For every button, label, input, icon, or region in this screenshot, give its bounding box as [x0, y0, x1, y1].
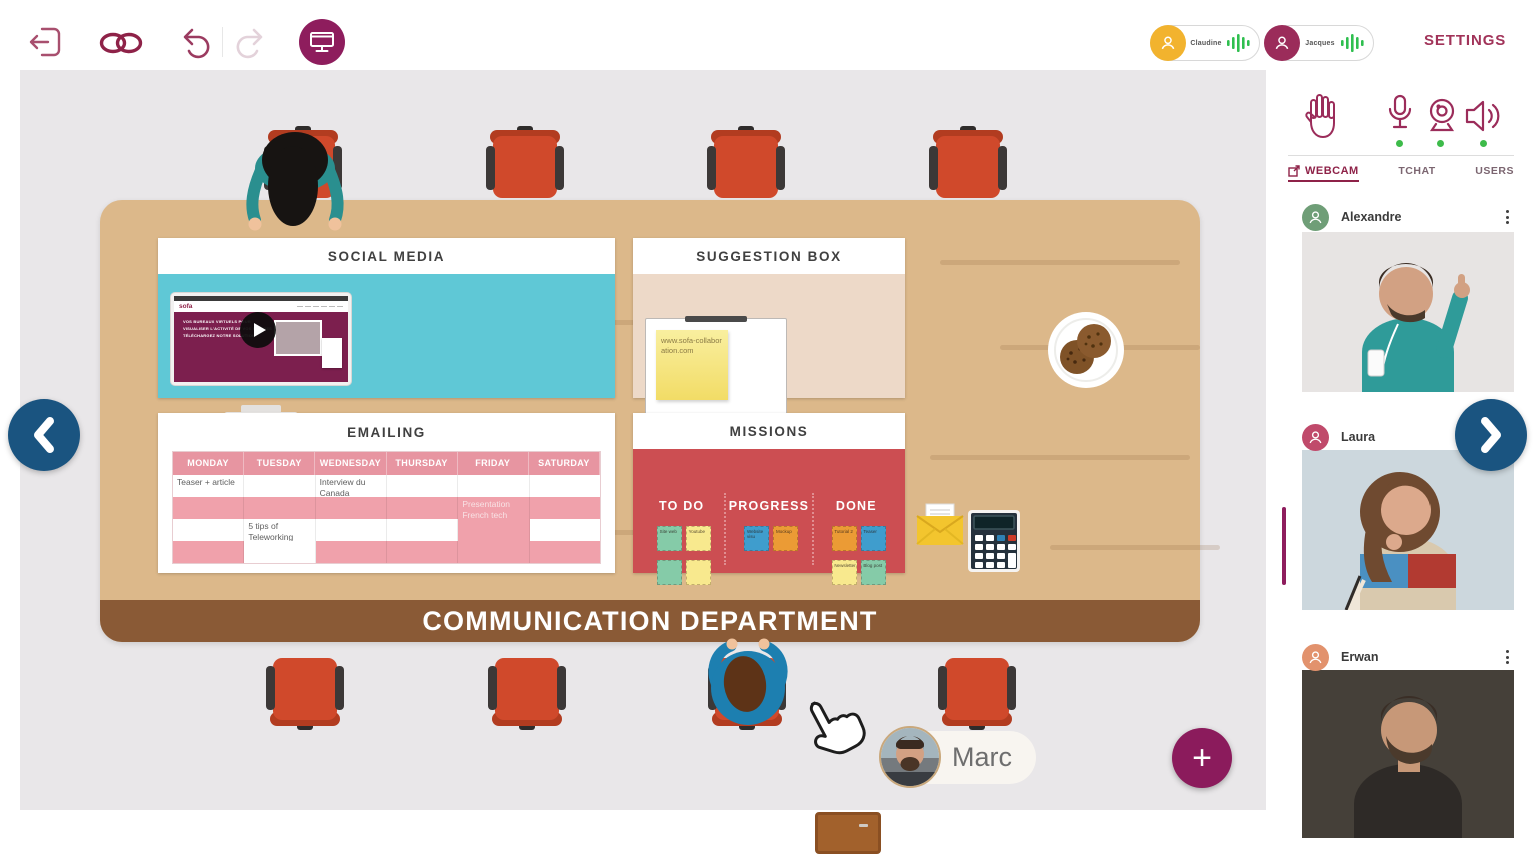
- avatar: [1302, 424, 1329, 451]
- chevron-right-icon: [1474, 413, 1508, 457]
- door-handle: [859, 824, 868, 827]
- exit-room-icon[interactable]: [26, 24, 64, 60]
- emailing-row: Teaser + articleInterview du Canada: [173, 475, 600, 497]
- board-title: SOCIAL MEDIA: [158, 238, 615, 274]
- avatar: [1264, 25, 1300, 61]
- calculator-icon[interactable]: [968, 510, 1020, 572]
- plus-glyph: +: [1192, 739, 1212, 778]
- emailing-column-header: WEDNESDAY: [315, 452, 386, 475]
- missions-columns: TO DOSite webYoutubePROGRESSWebsite visu…: [633, 485, 905, 573]
- chair[interactable]: [707, 126, 785, 204]
- toolbar-divider: [222, 27, 223, 57]
- speaker-icon[interactable]: [1464, 96, 1504, 136]
- emailing-cell[interactable]: [316, 519, 387, 541]
- hand-cursor: [796, 692, 872, 766]
- suggestion-box-body: www.sofa-collaboration.com: [633, 274, 905, 398]
- sticky-note[interactable]: Site web: [657, 526, 682, 551]
- webcam-feed-alexandre[interactable]: [1302, 232, 1514, 392]
- audio-wave-icon: [1340, 33, 1364, 53]
- emailing-row: Presentation French tech: [173, 497, 600, 519]
- redo-icon[interactable]: [232, 26, 268, 60]
- undo-icon[interactable]: [178, 26, 214, 60]
- hero-card: [322, 338, 342, 368]
- board-title: MISSIONS: [633, 413, 905, 449]
- sticky-note[interactable]: Website visu: [744, 526, 769, 551]
- sticky-note[interactable]: www.sofa-collaboration.com: [656, 330, 728, 400]
- cookie-plate[interactable]: [1047, 311, 1125, 389]
- chevron-left-icon: [27, 413, 61, 457]
- wood-grain: [940, 260, 1180, 265]
- missions-notes: Site webYoutube: [657, 526, 706, 585]
- chair[interactable]: [938, 652, 1016, 730]
- emailing-cell[interactable]: [316, 497, 387, 519]
- room-banner: COMMUNICATION DEPARTMENT: [100, 600, 1200, 642]
- emailing-table: MONDAYTUESDAYWEDNESDAYTHURSDAYFRIDAYSATU…: [172, 451, 601, 564]
- copy-link-icon[interactable]: [98, 29, 144, 57]
- seated-person-marc[interactable]: [693, 636, 803, 728]
- missions-board[interactable]: MISSIONS TO DOSite webYoutubePROGRESSWeb…: [633, 413, 905, 573]
- webcam-feed-erwan[interactable]: [1302, 670, 1514, 838]
- whiteboard-clip: [685, 316, 747, 322]
- participant-menu-button[interactable]: [1500, 650, 1514, 664]
- tab-tchat[interactable]: TCHAT: [1398, 165, 1435, 182]
- missions-column: DONETutorial 2TeaserNewsletterBlog post: [812, 493, 899, 565]
- sticky-note[interactable]: Teaser: [861, 526, 886, 551]
- sticky-note[interactable]: Blog post: [861, 560, 886, 585]
- emailing-cell[interactable]: [244, 475, 315, 497]
- emailing-cell[interactable]: [530, 475, 600, 497]
- virtual-office-app: Claudine Jacques SETTINGS: [0, 0, 1536, 854]
- emailing-cell[interactable]: [458, 475, 529, 497]
- speaker-on-indicator: [1480, 140, 1487, 147]
- hero-photo: [274, 320, 322, 356]
- avatar: [1302, 644, 1329, 671]
- sticky-note[interactable]: Youtube: [686, 526, 711, 551]
- present-screen-icon: [309, 30, 335, 54]
- emailing-cell[interactable]: [173, 497, 244, 519]
- chair[interactable]: [486, 126, 564, 204]
- board-title: EMAILING: [158, 425, 615, 440]
- emailing-cell[interactable]: [530, 497, 600, 519]
- voice-chip-jacques[interactable]: Jacques: [1264, 25, 1374, 61]
- emailing-cell[interactable]: Interview du Canada: [316, 475, 387, 497]
- missions-column: PROGRESSWebsite visuMockup: [724, 493, 811, 565]
- suggestion-box-board[interactable]: SUGGESTION BOX www.sofa-collaboration.co…: [633, 238, 905, 398]
- sticky-note[interactable]: [686, 560, 711, 585]
- sidebar-scrollbar-thumb[interactable]: [1282, 507, 1286, 585]
- raise-hand-icon[interactable]: [1303, 92, 1343, 140]
- avatar: [1150, 25, 1186, 61]
- emailing-cell[interactable]: [387, 475, 458, 497]
- participant-row-erwan: Erwan: [1302, 643, 1514, 671]
- top-toolbar: Claudine Jacques: [0, 0, 1536, 70]
- voice-chip-claudine[interactable]: Claudine: [1150, 25, 1260, 61]
- tab-label: WEBCAM: [1305, 165, 1359, 177]
- participant-name: Erwan: [1341, 650, 1500, 664]
- emailing-cell[interactable]: [173, 541, 244, 563]
- social-media-body: sofa VOS BUREAUX VIRTUELS POURVISUALISER…: [158, 274, 615, 398]
- sticky-note[interactable]: [657, 560, 682, 585]
- emailing-column-header: FRIDAY: [458, 452, 529, 475]
- emailing-column-header: SATURDAY: [529, 452, 600, 475]
- user-name-label: Marc: [952, 742, 1012, 773]
- emailing-cell[interactable]: Presentation French tech: [458, 497, 529, 519]
- missions-notes: Website visuMockup: [744, 526, 793, 551]
- room-door[interactable]: [815, 812, 881, 854]
- next-room-button[interactable]: [1455, 399, 1527, 471]
- voice-chip-name: Claudine: [1186, 40, 1226, 47]
- sticky-note[interactable]: Tutorial 2: [832, 526, 857, 551]
- sticky-note[interactable]: Newsletter: [832, 560, 857, 585]
- social-media-board[interactable]: SOCIAL MEDIA sofa VOS BUREAUX VIRTUELS P…: [158, 238, 615, 398]
- settings-button[interactable]: SETTINGS: [1424, 32, 1506, 49]
- tab-webcam[interactable]: WEBCAM: [1288, 165, 1359, 182]
- wood-grain: [930, 455, 1190, 460]
- webcam-feed-laura[interactable]: [1302, 450, 1514, 610]
- emailing-column-header: MONDAY: [173, 452, 244, 475]
- webcam-icon[interactable]: [1424, 96, 1460, 136]
- participant-menu-button[interactable]: [1500, 210, 1514, 224]
- chair[interactable]: [929, 126, 1007, 204]
- emailing-cell[interactable]: [387, 541, 458, 563]
- seated-person-top[interactable]: [240, 120, 350, 232]
- participant-name: Alexandre: [1341, 210, 1500, 224]
- mic-on-indicator: [1396, 140, 1403, 147]
- board-title: SUGGESTION BOX: [633, 238, 905, 274]
- user-photo-avatar[interactable]: [879, 726, 941, 788]
- emailing-cell[interactable]: [387, 519, 458, 541]
- sticky-note[interactable]: Mockup: [773, 526, 798, 551]
- emailing-column-header: TUESDAY: [244, 452, 315, 475]
- voice-chip-name: Jacques: [1300, 40, 1340, 47]
- emailing-cell[interactable]: [530, 519, 600, 541]
- missions-notes: Tutorial 2TeaserNewsletterBlog post: [832, 526, 881, 585]
- chair[interactable]: [266, 652, 344, 730]
- add-button[interactable]: +: [1172, 728, 1232, 788]
- missions-column-label: PROGRESS: [729, 499, 809, 513]
- sidebar-tabs: WEBCAM TCHAT USERS: [1288, 165, 1514, 182]
- emailing-board[interactable]: EMAILING MONDAYTUESDAYWEDNESDAYTHURSDAYF…: [158, 413, 615, 573]
- emailing-cell[interactable]: [530, 541, 600, 563]
- emailing-cell[interactable]: [316, 541, 387, 563]
- audio-wave-icon: [1226, 33, 1250, 53]
- envelope-icon[interactable]: [915, 502, 965, 546]
- present-screen-button[interactable]: [299, 19, 345, 65]
- emailing-cell[interactable]: [387, 497, 458, 519]
- expand-icon: [1288, 165, 1300, 177]
- webcam-on-indicator: [1437, 140, 1444, 147]
- emailing-cell[interactable]: [244, 497, 315, 519]
- emailing-cell[interactable]: [173, 519, 244, 541]
- emailing-column-header: THURSDAY: [387, 452, 458, 475]
- emailing-cell[interactable]: [244, 541, 315, 563]
- chair[interactable]: [488, 652, 566, 730]
- sidebar-divider: [1288, 155, 1514, 156]
- missions-column: TO DOSite webYoutube: [639, 493, 724, 565]
- previous-room-button[interactable]: [8, 399, 80, 471]
- emailing-cell[interactable]: [458, 519, 529, 541]
- wood-grain: [1050, 545, 1220, 550]
- tab-users[interactable]: USERS: [1475, 165, 1514, 182]
- avatar: [1302, 204, 1329, 231]
- emailing-row: 5 tips of Teleworking: [173, 519, 600, 541]
- nav-links: [297, 306, 343, 308]
- emailing-row: [173, 541, 600, 563]
- missions-column-label: DONE: [836, 499, 877, 513]
- participant-row-alexandre: Alexandre: [1302, 203, 1514, 231]
- emailing-cell[interactable]: Teaser + article: [173, 475, 244, 497]
- sofa-logo: sofa: [179, 303, 192, 310]
- emailing-header-row: MONDAYTUESDAYWEDNESDAYTHURSDAYFRIDAYSATU…: [173, 452, 600, 475]
- mic-icon[interactable]: [1386, 94, 1414, 136]
- missions-body: TO DOSite webYoutubePROGRESSWebsite visu…: [633, 449, 905, 573]
- play-button[interactable]: [240, 312, 276, 348]
- emailing-cell[interactable]: 5 tips of Teleworking: [244, 519, 315, 541]
- missions-column-label: TO DO: [659, 499, 704, 513]
- emailing-cell[interactable]: [458, 541, 529, 563]
